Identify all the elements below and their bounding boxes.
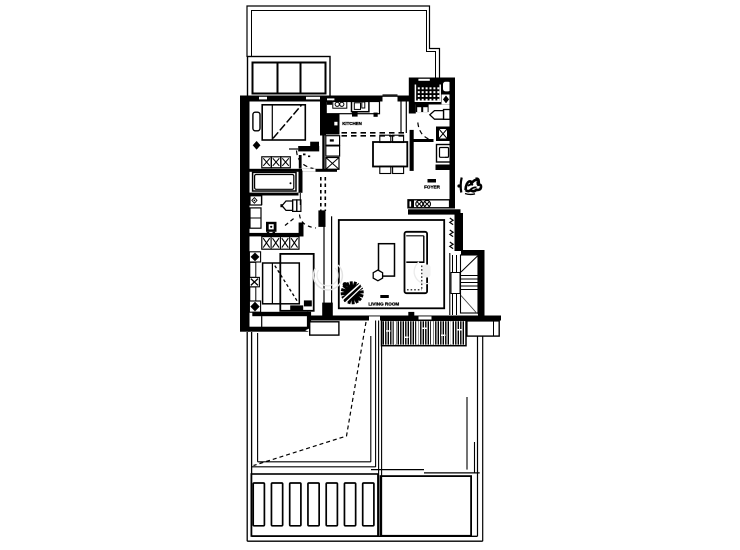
svg-text:FOYER: FOYER bbox=[424, 185, 441, 190]
svg-text:KITCHEN: KITCHEN bbox=[342, 121, 362, 126]
svg-text:LIVING ROOM: LIVING ROOM bbox=[368, 302, 399, 307]
